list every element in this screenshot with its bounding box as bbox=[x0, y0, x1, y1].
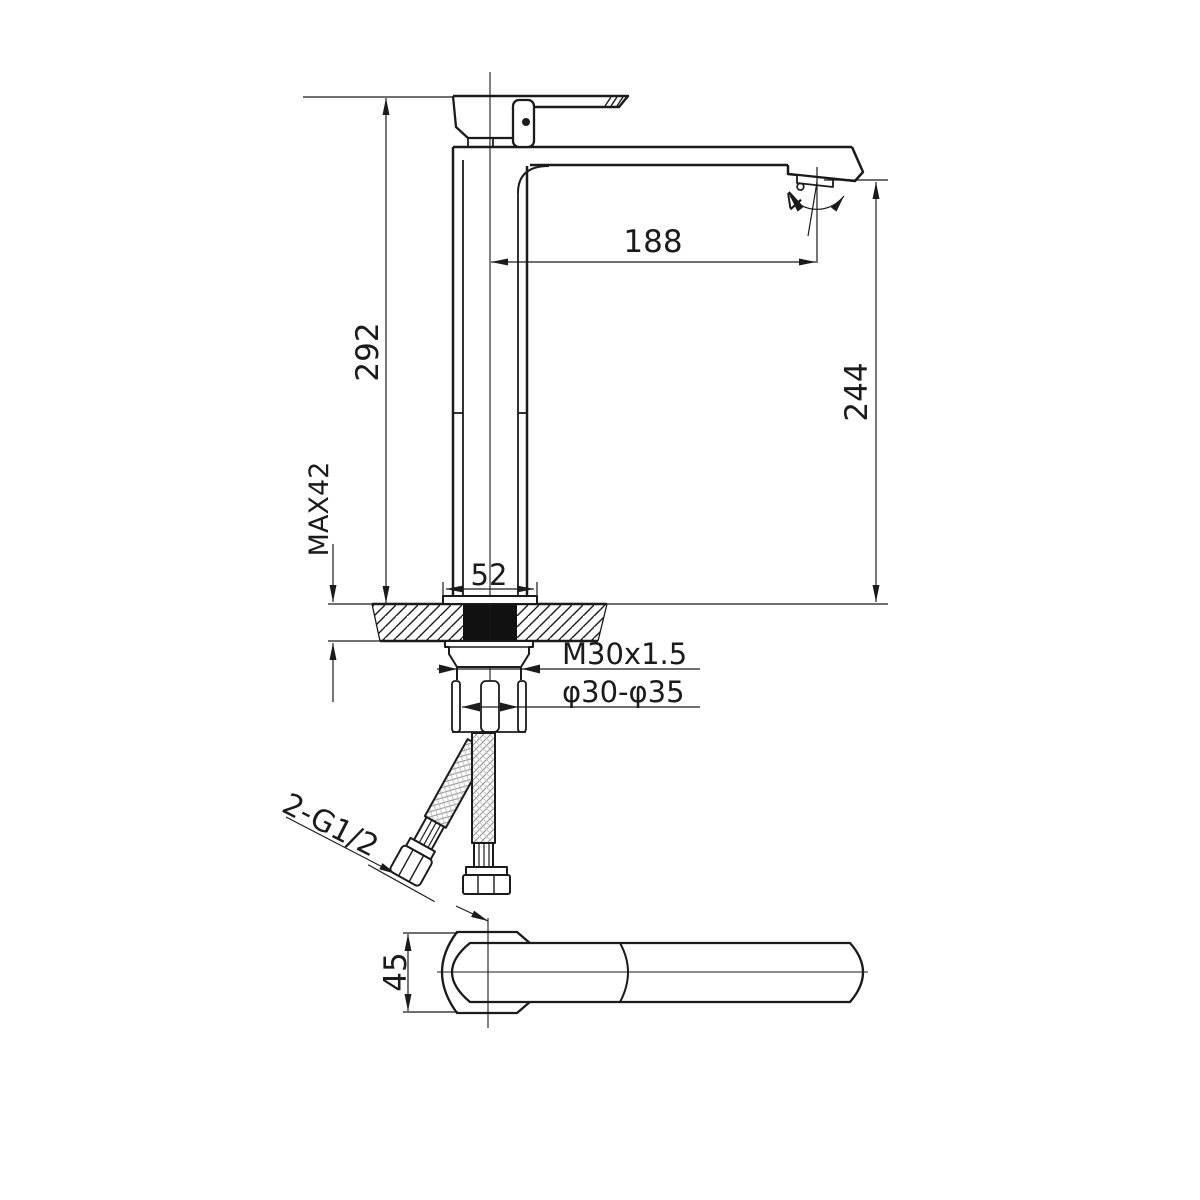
dimension-labels: 292 188 244 MAX42 52 M30x1.5 φ30-φ35 2-G… bbox=[277, 176, 875, 992]
label-spout-reach: 188 bbox=[623, 224, 682, 260]
hose-nut-flange-straight bbox=[466, 867, 507, 875]
dimensions-layer bbox=[286, 97, 888, 1012]
label-base-width: 52 bbox=[471, 558, 508, 592]
technical-drawing-page: 292 188 244 MAX42 52 M30x1.5 φ30-φ35 2-G… bbox=[0, 0, 1200, 1200]
label-outlet-height: 244 bbox=[839, 362, 875, 421]
shank-post-left bbox=[452, 681, 460, 732]
spout-fillet bbox=[518, 166, 549, 193]
supply-hoses bbox=[368, 727, 511, 902]
hose-hex-nut-straight bbox=[463, 875, 510, 894]
label-deck-thickness: MAX42 bbox=[304, 462, 335, 557]
mounting-hardware bbox=[445, 641, 533, 732]
label-inlet-connections: 2-G1/2 bbox=[277, 787, 384, 865]
countertop-section bbox=[328, 604, 888, 641]
top-view bbox=[437, 918, 868, 1028]
label-overall-height: 292 bbox=[350, 322, 386, 381]
hose-braid-straight bbox=[472, 733, 495, 843]
label-hole-diameter: φ30-φ35 bbox=[562, 675, 685, 709]
base-flange bbox=[443, 596, 537, 604]
faucet-drawing-svg: 292 188 244 MAX42 52 M30x1.5 φ30-φ35 2-G… bbox=[0, 0, 1200, 1200]
handle-lever bbox=[453, 96, 628, 107]
mounting-nut bbox=[445, 641, 533, 667]
handle-base bbox=[453, 96, 513, 138]
label-mounting-thread: M30x1.5 bbox=[562, 637, 687, 671]
label-base-depth: 45 bbox=[378, 952, 414, 991]
handle-set-screw bbox=[522, 118, 530, 126]
